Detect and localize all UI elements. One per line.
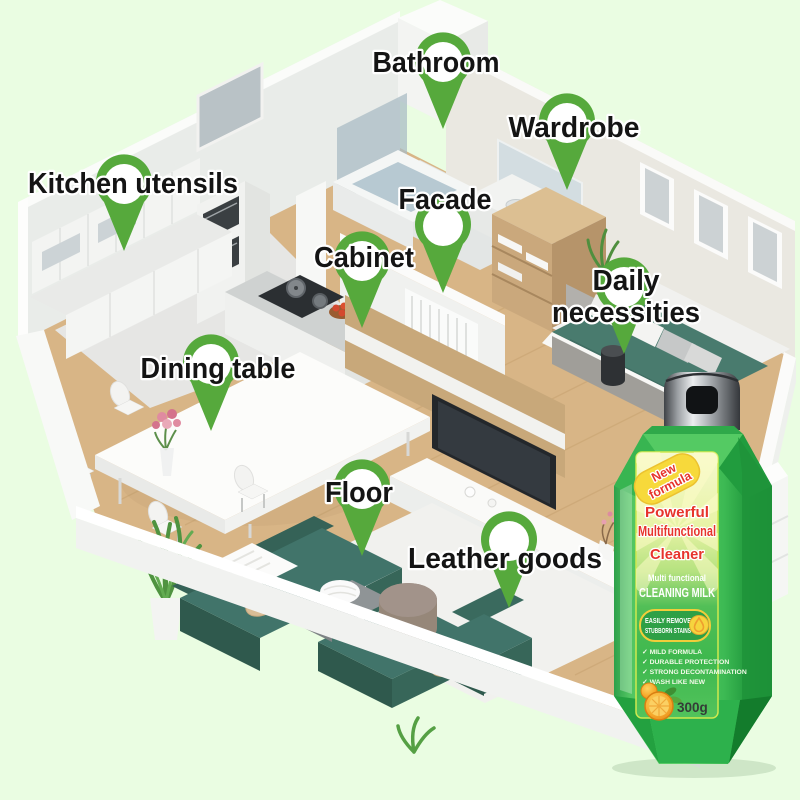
feature-item: ✓ STRONG DECONTAMINATION (642, 669, 747, 676)
headline-line1: Powerful (645, 504, 709, 521)
label-floor: Floor (325, 477, 393, 509)
type-big: CLEANING MILK (639, 586, 715, 600)
badge-line2: STUBBORN STAINS (645, 626, 691, 635)
decor-vase (465, 487, 475, 497)
feature-item: ✓ MILD FORMULA (642, 649, 702, 656)
weight-text: 300g (677, 700, 708, 715)
label-leather-goods: Leather goods (408, 543, 602, 575)
easily-remove-badge: EASILY REMOVE STUBBORN STAINS (640, 610, 710, 641)
type-small: Multi functional (648, 573, 706, 583)
waste-bin (601, 345, 625, 386)
badge-line1: EASILY REMOVE (645, 616, 691, 625)
promo-image: Bathroom Wardrobe Kitchen utensils Facad… (0, 0, 800, 800)
decor-vase (488, 499, 496, 507)
cap-notch (686, 386, 718, 414)
headline-line3: Cleaner (650, 546, 704, 563)
label-facade: Facade (399, 184, 492, 216)
headline-line2: Multifunctional (638, 523, 716, 540)
feature-item: ✓ DURABLE PROTECTION (642, 659, 729, 666)
label-dining-table: Dining table (141, 353, 296, 385)
label-cabinet: Cabinet (314, 242, 414, 274)
label-wardrobe: Wardrobe (509, 112, 640, 144)
label-necessities: necessities (552, 297, 700, 329)
cooking-pot (313, 294, 327, 308)
label-kitchen-utensils: Kitchen utensils (28, 168, 238, 200)
bottle-cap (664, 372, 740, 430)
label-daily: Daily (593, 265, 660, 297)
label-bathroom: Bathroom (373, 47, 500, 79)
